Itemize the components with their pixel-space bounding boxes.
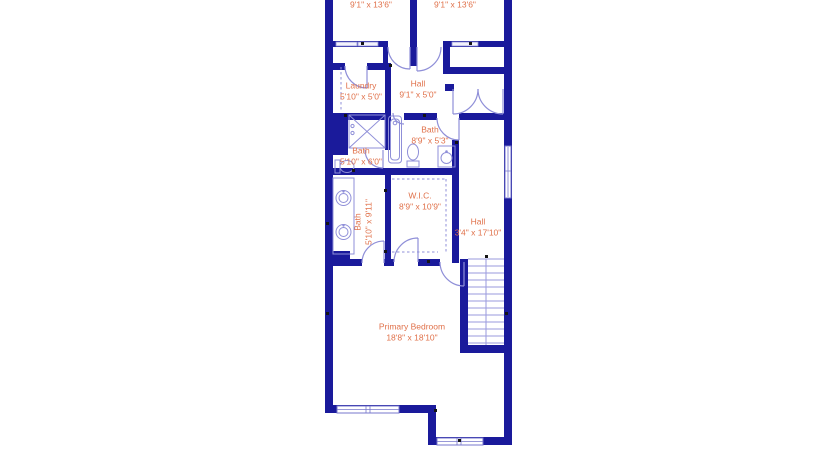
- door-closet-left: [453, 89, 478, 114]
- room-name: Bath: [411, 125, 448, 136]
- room-dims: 18'8" x 18'10": [379, 333, 445, 344]
- wall: [367, 63, 385, 70]
- room-dims: 9'1" x 13'6": [350, 0, 392, 11]
- wall: [410, 0, 417, 66]
- room-dims: 3'4" x 17'10": [455, 228, 502, 239]
- room-label-bedroom-left: 9'1" x 13'6": [350, 0, 392, 11]
- door-closet-right: [478, 89, 503, 114]
- wall: [385, 168, 391, 263]
- wall: [459, 113, 512, 120]
- room-name: Primary Bedroom: [379, 322, 445, 333]
- room-label-bath-small: Bath 5'10" x 6'0": [340, 146, 382, 169]
- room-dims: 9'1" x 5'0": [399, 90, 436, 101]
- wall: [383, 41, 388, 66]
- room-name: Hall: [399, 79, 436, 90]
- room-label-primary-bedroom: Primary Bedroom 18'8" x 18'10": [379, 322, 445, 345]
- door-wic: [394, 238, 418, 262]
- wall: [443, 67, 512, 74]
- wall: [333, 63, 345, 70]
- bathtub-icon: [389, 116, 402, 163]
- wall: [350, 259, 362, 266]
- room-dims: 5'10" x 9'11": [364, 199, 375, 245]
- room-name: Bath: [353, 199, 364, 245]
- wall: [333, 168, 459, 175]
- room-label-hall-upper: Hall 9'1" x 5'0": [399, 79, 436, 102]
- window-right-wall: [505, 146, 511, 198]
- room-dims: 5'10" x 6'0": [340, 157, 382, 168]
- wall: [404, 113, 437, 120]
- room-label-bath-hall: Bath 8'9" x 5'3": [411, 125, 448, 148]
- wall: [504, 0, 512, 445]
- room-dims: 9'1" x 13'6": [434, 0, 476, 11]
- room-name: W.I.C.: [399, 191, 441, 202]
- wall: [384, 259, 391, 266]
- room-name: Bath: [340, 146, 382, 157]
- wall: [325, 0, 333, 413]
- floor-plan: 9'1" x 13'6" 9'1" x 13'6" Laundry 5'10" …: [0, 0, 835, 467]
- room-dims: 5'10" x 5'0": [340, 92, 382, 103]
- wall: [460, 345, 504, 353]
- door-bedroom-right: [417, 47, 441, 71]
- wall: [333, 251, 350, 266]
- room-label-wic: W.I.C. 8'9" x 10'9": [399, 191, 441, 214]
- room-dims: 8'9" x 10'9": [399, 202, 441, 213]
- room-label-bedroom-right: 9'1" x 13'6": [434, 0, 476, 11]
- room-name: Hall: [455, 217, 502, 228]
- floor-plan-drawing: [0, 0, 835, 467]
- room-label-bath-primary: Bath 5'10" x 9'11": [353, 199, 376, 245]
- room-label-hall-lower: Hall 3'4" x 17'10": [455, 217, 502, 240]
- double-vanity-icon: [333, 178, 354, 254]
- room-dims: 8'9" x 5'3": [411, 136, 448, 147]
- staircase-icon: [468, 259, 504, 345]
- room-name: Laundry: [340, 81, 382, 92]
- window-bottom-left: [337, 406, 399, 413]
- wall-inset-windows: [336, 42, 478, 46]
- room-label-laundry: Laundry 5'10" x 5'0": [340, 81, 382, 104]
